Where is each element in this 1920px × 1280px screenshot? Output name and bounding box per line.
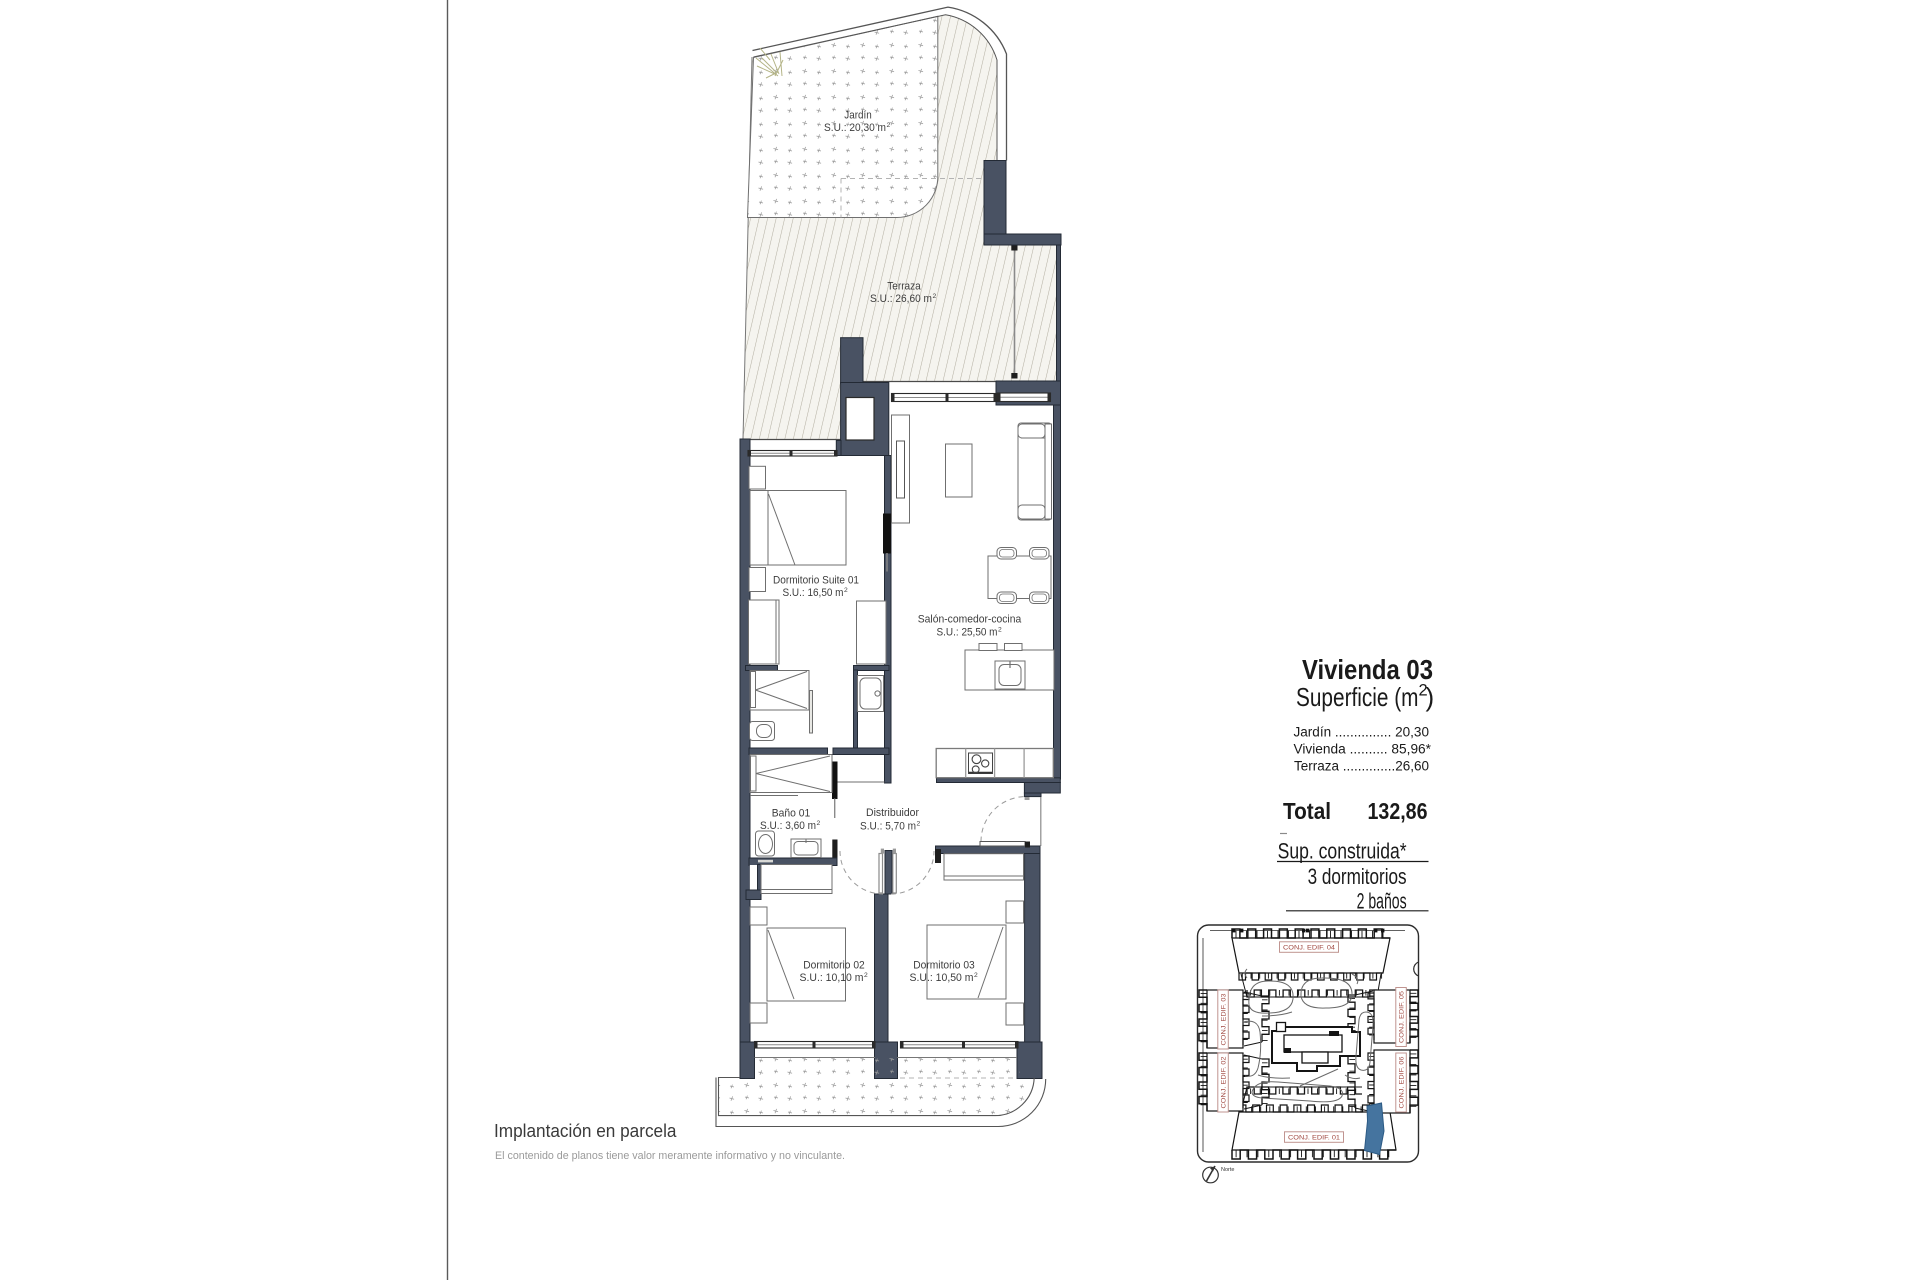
svg-text:Terraza ..............26,60: Terraza ..............26,60 [1294, 758, 1429, 773]
svg-text:Superficie (m: Superficie (m [1296, 682, 1419, 712]
svg-text:Dormitorio 03: Dormitorio 03 [913, 960, 975, 972]
svg-text:Dormitorio 02: Dormitorio 02 [803, 960, 865, 972]
svg-text:Jardín ............... 20,30: Jardín ............... 20,30 [1294, 724, 1430, 739]
svg-text:2 baños: 2 baños [1357, 889, 1407, 914]
svg-text:CONJ. EDIF. 03: CONJ. EDIF. 03 [1220, 993, 1227, 1045]
svg-text:El contenido de planos tiene v: El contenido de planos tiene valor meram… [495, 1150, 845, 1162]
svg-text:S.U.: 5,70 m: S.U.: 5,70 m [860, 821, 916, 833]
svg-text:2: 2 [864, 972, 868, 979]
svg-text:3 dormitorios: 3 dormitorios [1308, 864, 1407, 889]
svg-text:CONJ. EDIF. 06: CONJ. EDIF. 06 [1398, 1056, 1405, 1108]
svg-text:Norte: Norte [1221, 1167, 1234, 1173]
svg-text:Total: Total [1283, 798, 1331, 824]
svg-text:2: 2 [844, 587, 848, 594]
svg-text:S.U.: 16,50 m: S.U.: 16,50 m [783, 587, 844, 599]
svg-text:S.U.: 10,10 m: S.U.: 10,10 m [800, 972, 864, 984]
svg-text:2: 2 [933, 293, 937, 300]
svg-text:Salón-comedor-cocina: Salón-comedor-cocina [918, 614, 1022, 626]
svg-text:Terraza: Terraza [887, 281, 921, 293]
svg-text:Vivienda .......... 85,96*: Vivienda .......... 85,96* [1294, 741, 1432, 756]
svg-text:CONJ. EDIF. 02: CONJ. EDIF. 02 [1220, 1056, 1227, 1108]
svg-text:CONJ. EDIF. 01: CONJ. EDIF. 01 [1288, 1134, 1340, 1141]
svg-text:Sup. construida*: Sup. construida* [1278, 838, 1407, 863]
svg-text:S.U.: 3,60 m: S.U.: 3,60 m [760, 820, 816, 832]
svg-text:132,86: 132,86 [1368, 798, 1428, 824]
svg-text:): ) [1426, 682, 1435, 712]
svg-text:S.U.: 20,30 m: S.U.: 20,30 m [824, 122, 886, 134]
svg-text:Dormitorio Suite 01: Dormitorio Suite 01 [773, 575, 859, 587]
svg-text:S.U.: 25,50 m: S.U.: 25,50 m [937, 627, 998, 639]
svg-text:2: 2 [817, 820, 821, 827]
svg-text:S.U.: 26,60 m: S.U.: 26,60 m [870, 293, 932, 305]
svg-text:Implantación en parcela: Implantación en parcela [494, 1120, 677, 1141]
svg-text:CONJ. EDIF. 05: CONJ. EDIF. 05 [1398, 991, 1405, 1043]
svg-text:Baño 01: Baño 01 [772, 808, 811, 820]
svg-text:Distribuidor: Distribuidor [866, 807, 919, 819]
svg-text:2: 2 [974, 972, 978, 979]
svg-text:Vivienda 03: Vivienda 03 [1302, 654, 1433, 685]
svg-text:2: 2 [998, 627, 1002, 634]
svg-text:2: 2 [917, 821, 921, 828]
svg-text:Jardín: Jardín [844, 110, 872, 122]
svg-text:2: 2 [887, 122, 891, 129]
svg-text:S.U.: 10,50 m: S.U.: 10,50 m [910, 972, 974, 984]
svg-text:CONJ. EDIF. 04: CONJ. EDIF. 04 [1283, 944, 1335, 951]
